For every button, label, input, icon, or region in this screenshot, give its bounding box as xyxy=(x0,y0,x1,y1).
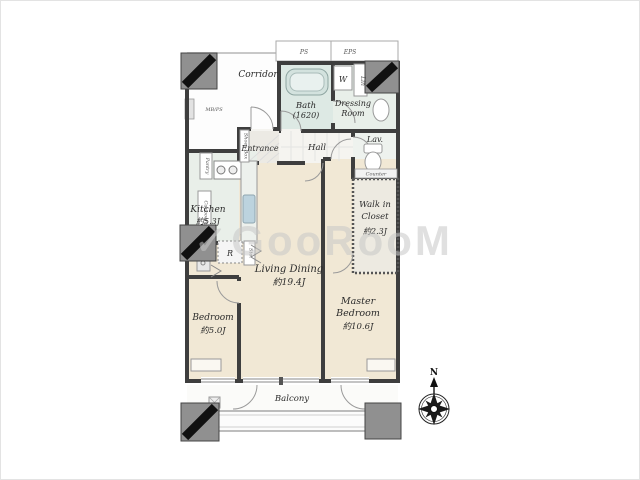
compass-rose xyxy=(418,377,450,425)
washer-box xyxy=(334,66,352,90)
burner-1 xyxy=(217,166,225,174)
shaft-box xyxy=(276,41,398,61)
floors xyxy=(187,53,398,411)
column-bottom-left xyxy=(181,403,219,441)
compass-needle-icon xyxy=(430,377,438,387)
column-mid-left xyxy=(180,225,216,261)
washbasin-icon xyxy=(373,99,389,121)
burner-2 xyxy=(229,166,237,174)
windows xyxy=(201,377,369,385)
pantry-box xyxy=(200,153,212,179)
wic-floor xyxy=(353,179,398,273)
master-window-gap xyxy=(331,377,369,385)
refrigerator-box xyxy=(218,241,242,263)
bedroom-low-window xyxy=(191,359,221,371)
bedroom-window-gap xyxy=(201,377,235,385)
master-low-window xyxy=(367,359,395,371)
floor-plan-canvas: Corridor PS EPS MB/PS Bath (1620) W Lin … xyxy=(1,1,640,480)
column-top-left xyxy=(181,53,217,89)
balcony-railing xyxy=(195,411,387,431)
window-mullion xyxy=(279,377,283,385)
compass-north-label: N xyxy=(430,368,438,378)
sink-icon xyxy=(243,195,255,223)
storage-box xyxy=(244,241,255,265)
bathtub-inner xyxy=(290,73,324,91)
shoes-box xyxy=(240,130,249,162)
column-top-right xyxy=(365,61,399,93)
counter-strip xyxy=(355,169,397,178)
floor-plan-image: Corridor PS EPS MB/PS Bath (1620) W Lin … xyxy=(0,0,640,480)
column-bottom-right xyxy=(365,403,401,439)
